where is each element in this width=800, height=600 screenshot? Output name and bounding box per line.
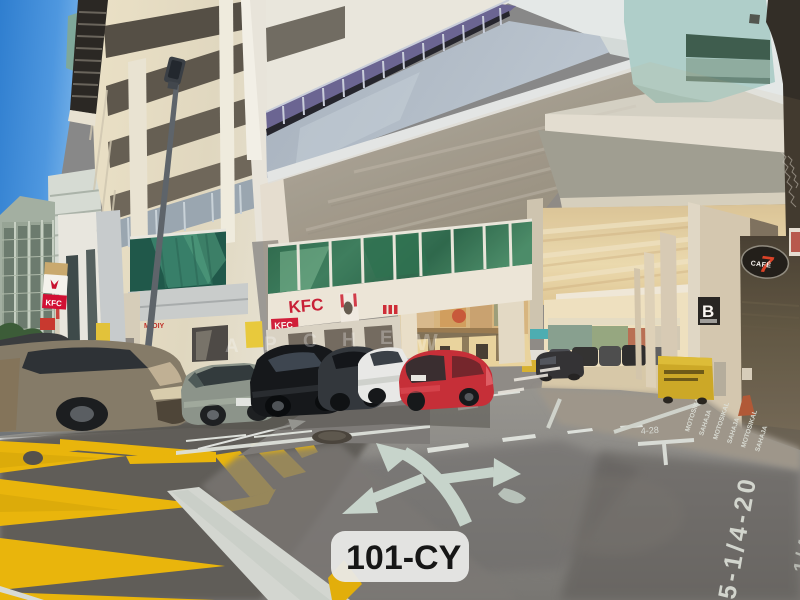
svg-text:KFC: KFC — [45, 298, 62, 308]
svg-text:C: C — [303, 331, 317, 352]
svg-text:4-28: 4-28 — [640, 425, 659, 436]
svg-text:W: W — [416, 329, 438, 355]
svg-text:P: P — [264, 334, 277, 355]
svg-text:A: A — [225, 336, 239, 357]
svg-text:E: E — [380, 328, 393, 349]
svg-text:101-CY: 101-CY — [346, 539, 462, 577]
svg-text:H: H — [342, 330, 356, 351]
